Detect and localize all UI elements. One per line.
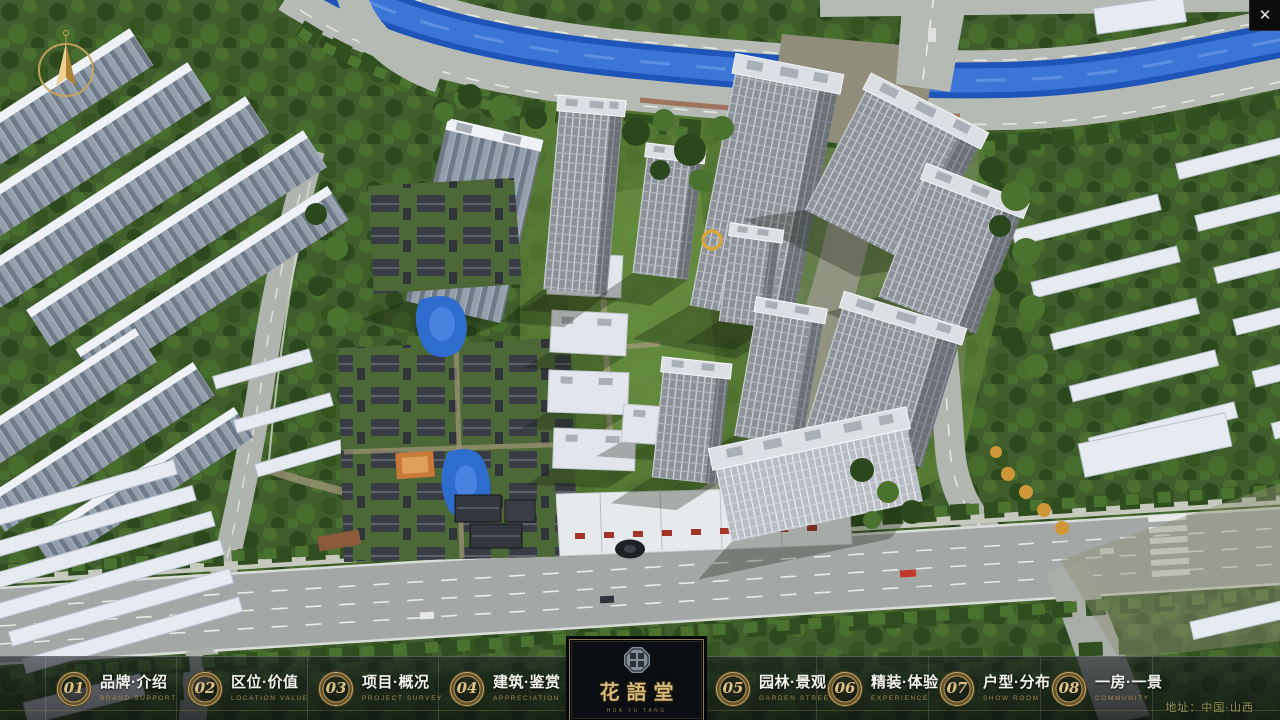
nav-label-zh: 一房·一景 [1095, 675, 1163, 692]
nav-item-garden[interactable]: 05 园林·景观 GARDEN STREET [704, 657, 816, 720]
nav-number-badge: 06 [828, 672, 862, 706]
nav-number-badge: 03 [319, 672, 353, 706]
nav-label-zh: 品牌·介绍 [100, 675, 177, 692]
nav-label-en: PROJECT SURVEY [362, 695, 443, 702]
nav-item-brand[interactable]: 01 品牌·介绍 BRAND SUPPORT [45, 657, 176, 720]
nav-item-interior[interactable]: 06 精装·体验 EXPERIENCE [816, 657, 928, 720]
nav-number-badge: 04 [450, 672, 484, 706]
nav-item-views[interactable]: 08 一房·一景 COMMUNITY [1040, 657, 1152, 720]
nav-label-zh: 项目·概况 [362, 675, 443, 692]
nav-item-location[interactable]: 02 区位·价值 LOCATION VALUE [176, 657, 307, 720]
nav-number-badge: 05 [716, 672, 750, 706]
nav-number-badge: 07 [940, 672, 974, 706]
bottom-navbar: 01 品牌·介绍 BRAND SUPPORT 02 区位·价值 LOCATION… [0, 656, 1280, 720]
masterplan-3d-view[interactable] [0, 0, 1280, 720]
nav-label-en: BRAND SUPPORT [100, 695, 177, 702]
nav-label-en: COMMUNITY [1095, 695, 1163, 702]
nav-label-zh: 区位·价值 [231, 675, 309, 692]
sales-app-window: ✕ 01 品牌·介绍 BRAND SUPPORT 02 区位·价值 LOCATI… [0, 0, 1280, 720]
nav-number-badge: 02 [188, 672, 222, 706]
nav-label-zh: 建筑·鉴赏 [493, 675, 561, 692]
nav-label-en: LOCATION VALUE [231, 695, 309, 702]
logo-subtext: HUA YU TANG [607, 708, 667, 714]
logo-panel[interactable]: 花語堂 HUA YU TANG [569, 639, 704, 720]
nav-number-badge: 01 [57, 672, 91, 706]
nav-item-project[interactable]: 03 项目·概况 PROJECT SURVEY [307, 657, 438, 720]
project-address: 地址：中国·山西 [1153, 699, 1280, 720]
close-button[interactable]: ✕ [1249, 0, 1280, 31]
seal-emblem-icon [623, 646, 651, 674]
nav-number-badge: 08 [1052, 672, 1086, 706]
nav-item-floorplans[interactable]: 07 户型·分布 SHOW ROOM [928, 657, 1040, 720]
nav-item-architecture[interactable]: 04 建筑·鉴赏 APPRECIATION [438, 657, 569, 720]
nav-label-en: APPRECIATION [493, 695, 561, 702]
close-icon: ✕ [1259, 6, 1272, 24]
compass[interactable] [34, 28, 98, 106]
logo-name: 花語堂 [593, 676, 681, 705]
